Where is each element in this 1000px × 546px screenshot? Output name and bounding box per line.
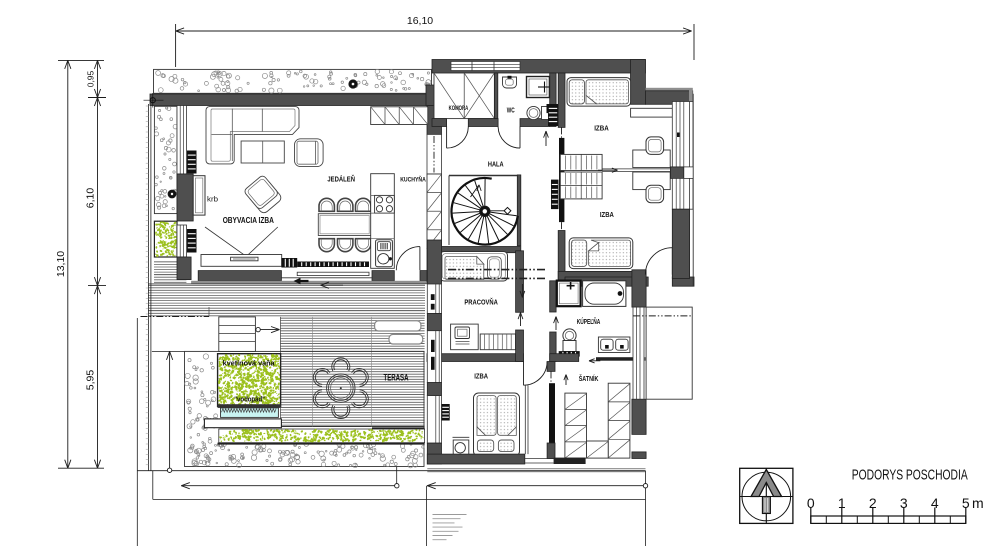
svg-text:5: 5 (962, 495, 970, 511)
svg-text:krb: krb (207, 195, 218, 204)
svg-text:KÚPEĽŇA: KÚPEĽŇA (577, 317, 601, 326)
svg-text:1: 1 (838, 495, 846, 511)
svg-text:0: 0 (807, 495, 815, 511)
svg-text:WC: WC (507, 106, 515, 115)
svg-text:OBYVACIA IZBA: OBYVACIA IZBA (223, 216, 274, 225)
svg-text:PODORYS POSCHODIA: PODORYS POSCHODIA (852, 467, 968, 484)
svg-text:PRACOVŇA: PRACOVŇA (464, 298, 498, 307)
svg-text:3: 3 (900, 495, 908, 511)
svg-text:IZBA: IZBA (594, 123, 609, 132)
svg-text:4: 4 (931, 495, 939, 511)
svg-text:HALA: HALA (488, 160, 504, 169)
svg-text:JEDÁLEŇ: JEDÁLEŇ (327, 175, 355, 184)
svg-text:KUCHYŇA: KUCHYŇA (400, 176, 426, 184)
svg-text:kvetinová vaňa: kvetinová vaňa (223, 359, 276, 368)
svg-text:TERASA: TERASA (384, 373, 409, 384)
svg-text:m: m (972, 495, 984, 511)
svg-text:5,95: 5,95 (85, 370, 97, 391)
svg-text:13,10: 13,10 (55, 251, 67, 277)
svg-text:2: 2 (869, 495, 877, 511)
svg-text:16,10: 16,10 (407, 15, 433, 27)
svg-text:KOMORA: KOMORA (449, 105, 469, 112)
svg-text:0,95: 0,95 (86, 70, 96, 87)
svg-text:IZBA: IZBA (474, 372, 488, 381)
svg-text:ŠATNÍK: ŠATNÍK (579, 374, 599, 383)
svg-text:"vodopád": "vodopád" (234, 395, 265, 404)
svg-text:6,10: 6,10 (85, 188, 97, 209)
svg-text:IZBA: IZBA (600, 210, 614, 219)
